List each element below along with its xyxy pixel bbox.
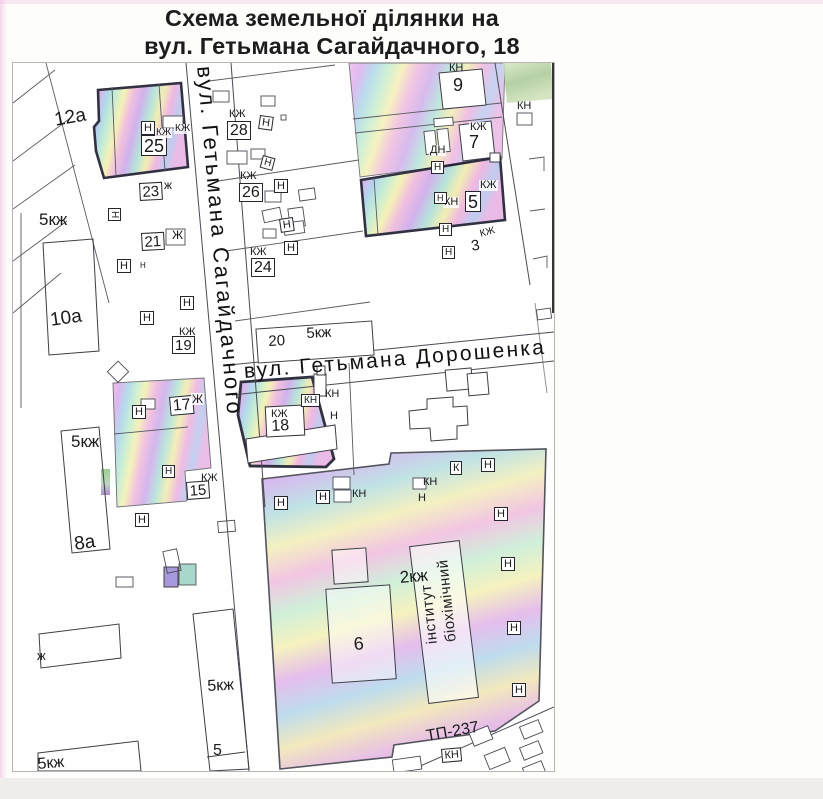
scan-edge-tint-bottom xyxy=(0,778,823,799)
map-label: Н xyxy=(494,507,508,521)
map-label: Н xyxy=(507,621,521,635)
map-label: Н xyxy=(274,179,288,193)
map-label: 5кж xyxy=(37,755,65,772)
page-title-line2: вул. Гетьмана Сагайдачного, 18 xyxy=(0,33,664,61)
map-label: 5кж xyxy=(39,211,67,228)
map-label: Н xyxy=(140,311,154,325)
map-label: КН xyxy=(517,101,531,112)
map-label: Н xyxy=(431,161,444,174)
map-label: Н xyxy=(180,296,194,310)
map-label: ДН xyxy=(429,145,446,156)
map-label: Ж xyxy=(191,393,204,405)
map-label: Н xyxy=(330,411,338,422)
map-label: КЖ xyxy=(155,128,172,138)
map-label: 18 xyxy=(271,418,290,435)
map-label: КН xyxy=(449,63,463,74)
map-label: 12а xyxy=(53,105,88,129)
map-label: КН xyxy=(441,747,463,763)
map-label: 6 xyxy=(353,634,365,653)
scanned-site-plan-page: Схема земельної ділянки на вул. Гетьмана… xyxy=(0,0,823,799)
map-label: 20 xyxy=(268,333,285,349)
map-label: Н xyxy=(442,246,455,259)
map-label: 5 xyxy=(213,743,222,759)
map-label: Ж xyxy=(172,229,183,241)
map-label: К xyxy=(450,461,462,475)
map-label: 25 xyxy=(141,135,167,156)
map-label: Н xyxy=(284,241,298,255)
map-label: КЖ xyxy=(250,247,267,258)
map-label: Н xyxy=(274,496,288,510)
map-label: Н xyxy=(418,493,426,504)
map-label: 9 xyxy=(453,76,463,94)
map-label: 26 xyxy=(239,183,263,202)
map-label: КН xyxy=(352,489,366,500)
map-label: КН xyxy=(423,477,437,488)
map-label: Н xyxy=(108,208,121,221)
map-label: ж xyxy=(164,179,172,191)
map-label: Н xyxy=(162,465,175,478)
page-title: Схема земельної ділянки на вул. Гетьмана… xyxy=(0,5,664,60)
map-label: КЖ xyxy=(479,180,498,191)
map-label: КЖ xyxy=(229,109,246,120)
map-label: Н xyxy=(316,490,330,504)
map-label: КЖ xyxy=(174,124,191,134)
map-label: Н xyxy=(501,557,515,571)
map-label: Н xyxy=(434,192,447,204)
map-label: 23 xyxy=(139,182,163,201)
map-label: Н xyxy=(117,259,131,273)
scan-edge-tint xyxy=(0,0,7,780)
map-label: 8а xyxy=(73,532,97,554)
map-label: КЖ xyxy=(240,171,257,182)
map-label: Н xyxy=(512,683,526,697)
site-plan-map: вул. Гетьмана Сагайдачного вул. Гетьмана… xyxy=(12,62,555,772)
page-title-line1: Схема земельної ділянки на xyxy=(0,5,664,33)
map-label: Н xyxy=(279,217,295,233)
map-label: Н xyxy=(132,405,146,419)
map-label: КН xyxy=(325,389,339,400)
map-label: 2кж xyxy=(399,567,429,586)
map-label: 28 xyxy=(227,121,251,140)
map-label: 19 xyxy=(172,336,195,354)
map-label: 10а xyxy=(49,307,83,330)
map-label: 5 xyxy=(465,191,481,212)
map-label: Н xyxy=(140,262,146,270)
map-label: Н xyxy=(258,115,274,131)
map-label: 7 xyxy=(469,133,479,151)
map-label: Н xyxy=(141,121,155,135)
map-label: КН xyxy=(301,394,320,407)
map-label: Н xyxy=(135,513,149,527)
scan-edge-tint-top xyxy=(0,0,823,4)
map-label: Н xyxy=(481,458,495,472)
map-label: Н xyxy=(439,223,452,236)
map-label: 24 xyxy=(251,258,275,277)
map-label: 5кж xyxy=(71,433,99,450)
map-label: 15 xyxy=(186,480,210,500)
map-label: 21 xyxy=(141,232,165,251)
map-label: 5кж xyxy=(306,325,332,341)
highlighted-plots xyxy=(94,63,553,769)
map-label: 5кж xyxy=(207,678,234,695)
map-label: ж xyxy=(37,649,46,662)
